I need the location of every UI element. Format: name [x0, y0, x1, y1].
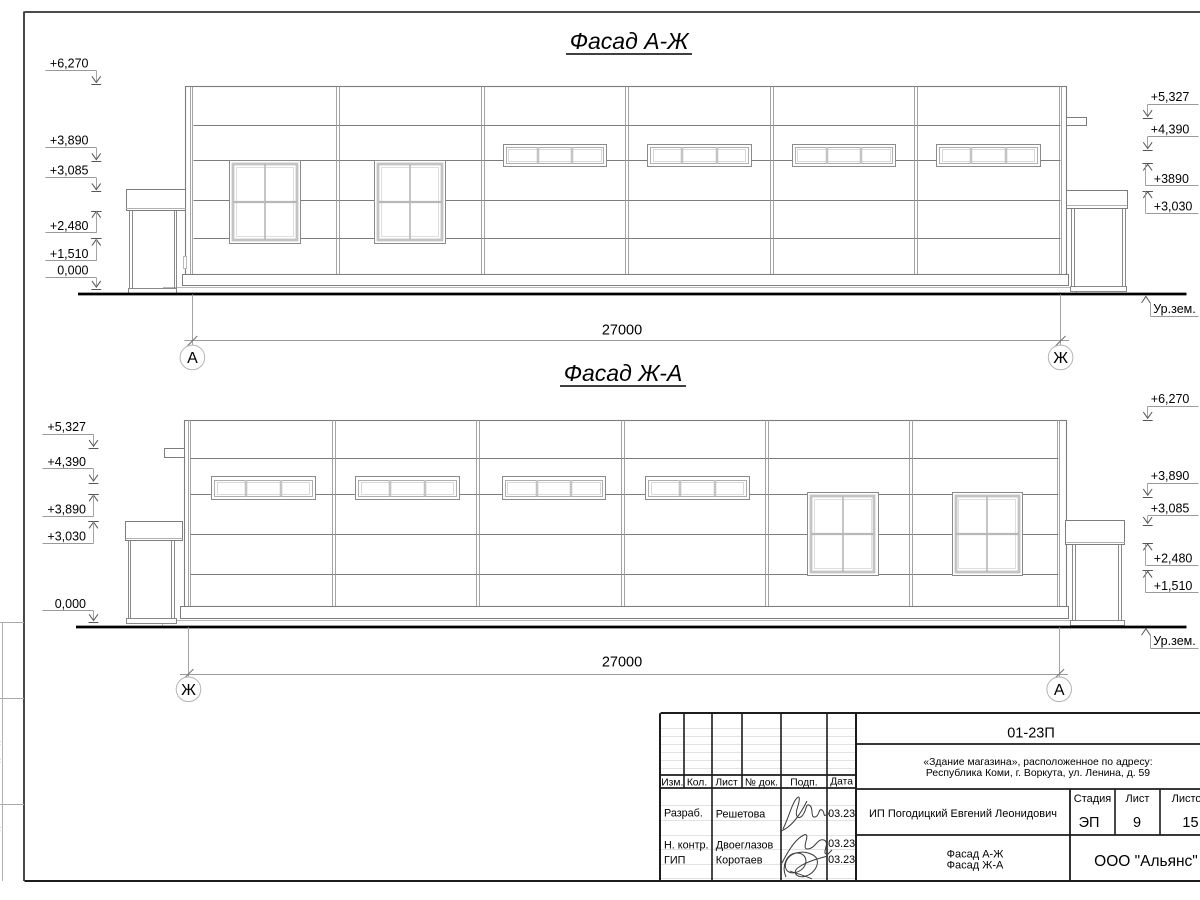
svg-text:+3,085: +3,085 — [50, 163, 89, 177]
svg-text:+1,510: +1,510 — [50, 247, 89, 261]
svg-text:Подп.: Подп. — [790, 777, 817, 788]
svg-text:А: А — [1054, 682, 1065, 699]
svg-text:Взам. инв. №: Взам. инв. № — [0, 640, 1, 683]
svg-text:+4,390: +4,390 — [47, 455, 86, 469]
svg-text:0,000: 0,000 — [57, 263, 88, 277]
svg-text:+3,890: +3,890 — [50, 133, 89, 147]
svg-text:«Здание магазина», расположенн: «Здание магазина», расположенное по адре… — [923, 757, 1152, 768]
svg-text:Кол.: Кол. — [687, 777, 707, 788]
svg-text:Ж: Ж — [1053, 350, 1068, 367]
svg-text:+3,030: +3,030 — [1154, 199, 1193, 213]
svg-text:А: А — [187, 350, 198, 367]
svg-text:Листов: Листов — [1172, 793, 1200, 805]
svg-text:+2,480: +2,480 — [50, 219, 89, 233]
svg-text:03.23: 03.23 — [828, 854, 855, 866]
svg-text:№ док.: № док. — [745, 777, 778, 788]
svg-text:ИП Погодицкий Евгений Леонидов: ИП Погодицкий Евгений Леонидович — [869, 808, 1057, 820]
svg-text:+2,480: +2,480 — [1154, 552, 1193, 566]
svg-text:Стадия: Стадия — [1074, 793, 1112, 805]
svg-text:+5,327: +5,327 — [1151, 90, 1190, 104]
svg-text:ЭП: ЭП — [1079, 815, 1100, 831]
svg-text:Фасад Ж-А: Фасад Ж-А — [947, 860, 1004, 872]
svg-text:Фасад Ж-А: Фасад Ж-А — [564, 360, 683, 386]
svg-text:+3,030: +3,030 — [47, 530, 86, 544]
svg-text:0,000: 0,000 — [55, 597, 86, 611]
svg-text:Фасад А-Ж: Фасад А-Ж — [570, 28, 690, 54]
svg-text:Лист: Лист — [715, 777, 738, 788]
svg-text:Лист: Лист — [1126, 793, 1150, 805]
svg-text:+3890: +3890 — [1154, 172, 1189, 186]
svg-text:01-23П: 01-23П — [1007, 726, 1055, 742]
svg-text:15: 15 — [1182, 815, 1198, 831]
svg-text:Республика Коми, г. Воркута, у: Республика Коми, г. Воркута, ул. Ленина,… — [926, 767, 1150, 779]
svg-text:Разраб.: Разраб. — [664, 808, 703, 820]
svg-text:27000: 27000 — [602, 655, 642, 671]
svg-text:Дата: Дата — [830, 776, 853, 787]
svg-text:Подп. и дата: Подп. и дата — [0, 730, 1, 771]
svg-text:ООО "Альянс": ООО "Альянс" — [1094, 853, 1198, 870]
svg-text:9: 9 — [1133, 815, 1141, 831]
svg-text:+5,327: +5,327 — [47, 420, 86, 434]
svg-text:Н. контр.: Н. контр. — [664, 840, 709, 852]
svg-text:03.23: 03.23 — [828, 808, 855, 820]
svg-text:+4,390: +4,390 — [1151, 122, 1190, 136]
svg-text:+3,890: +3,890 — [1151, 469, 1190, 483]
svg-text:Инв. № подл.: Инв. № подл. — [0, 821, 1, 865]
svg-text:27000: 27000 — [602, 323, 642, 339]
svg-text:03.23: 03.23 — [828, 838, 855, 850]
svg-text:Ур.зем.: Ур.зем. — [1153, 302, 1195, 316]
svg-text:+3,890: +3,890 — [47, 503, 86, 517]
svg-text:Ур.зем.: Ур.зем. — [1153, 634, 1195, 648]
svg-text:Изм.: Изм. — [661, 777, 683, 788]
svg-text:ГИП: ГИП — [664, 855, 685, 867]
svg-text:Ж: Ж — [181, 682, 196, 699]
svg-text:Коротаев: Коротаев — [716, 855, 763, 867]
svg-text:Двоеглазов: Двоеглазов — [716, 840, 774, 852]
svg-text:+6,270: +6,270 — [1151, 392, 1190, 406]
svg-text:Решетова: Решетова — [716, 809, 766, 821]
svg-text:+1,510: +1,510 — [1154, 579, 1193, 593]
svg-text:+3,085: +3,085 — [1151, 502, 1190, 516]
svg-text:+6,270: +6,270 — [50, 56, 89, 70]
